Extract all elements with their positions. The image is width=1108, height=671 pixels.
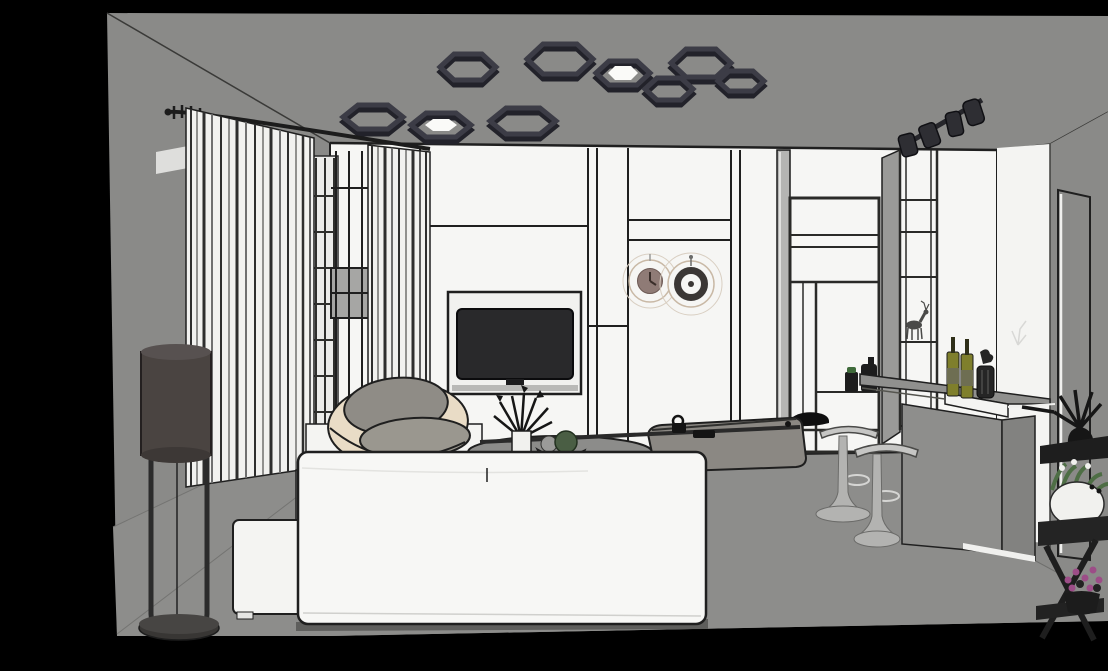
mirror-column xyxy=(777,150,790,455)
sofa xyxy=(296,452,708,631)
tv-niche xyxy=(448,292,581,394)
tv-screen xyxy=(457,309,573,379)
wall-clock-ring xyxy=(660,253,722,315)
3d-viewport[interactable] xyxy=(0,0,1108,671)
